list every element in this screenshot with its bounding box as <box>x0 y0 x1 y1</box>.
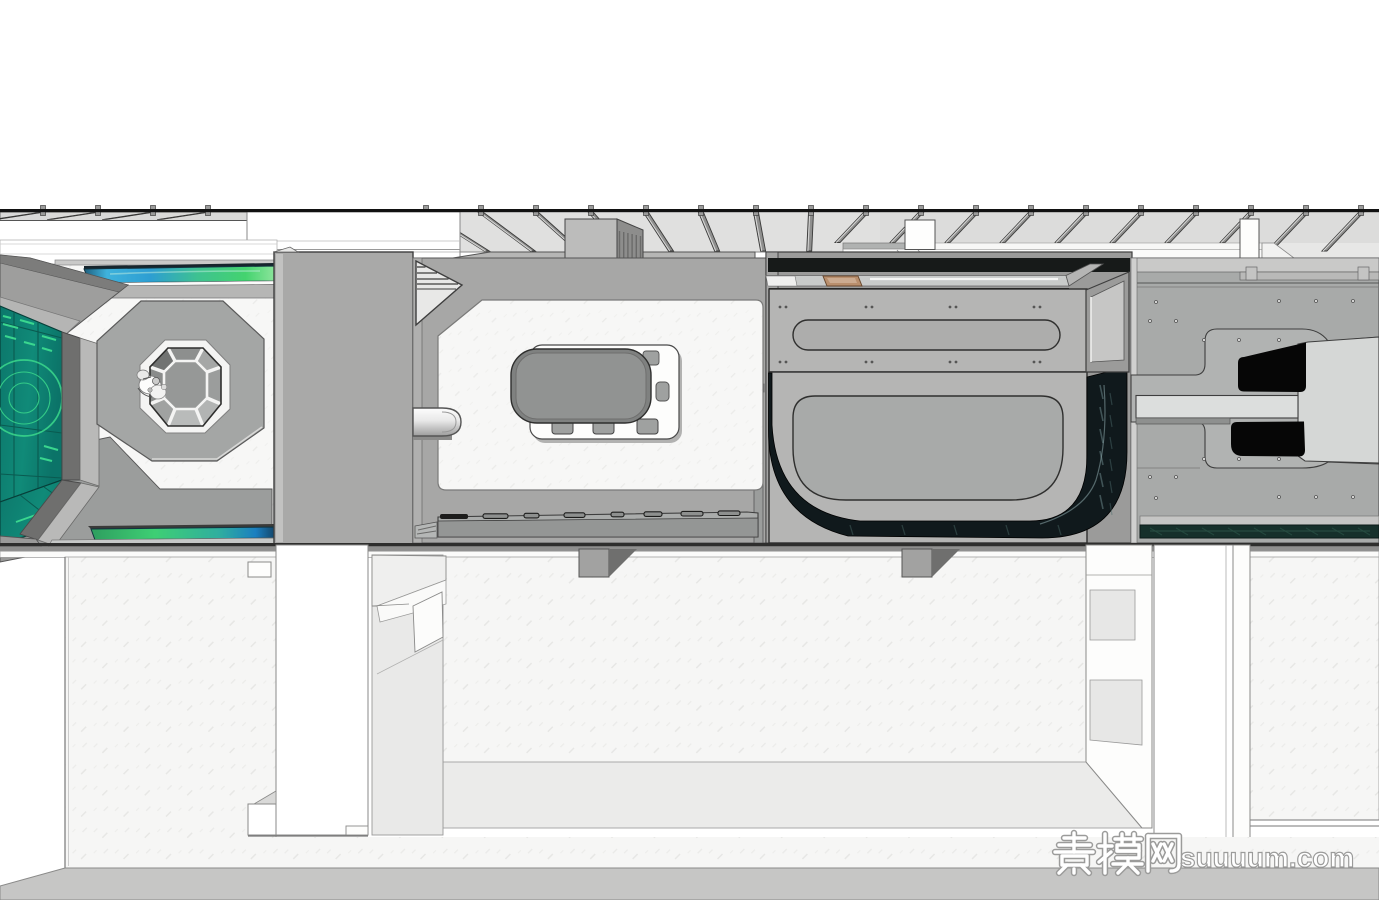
svg-text:suuuum.com: suuuum.com <box>1180 842 1354 873</box>
